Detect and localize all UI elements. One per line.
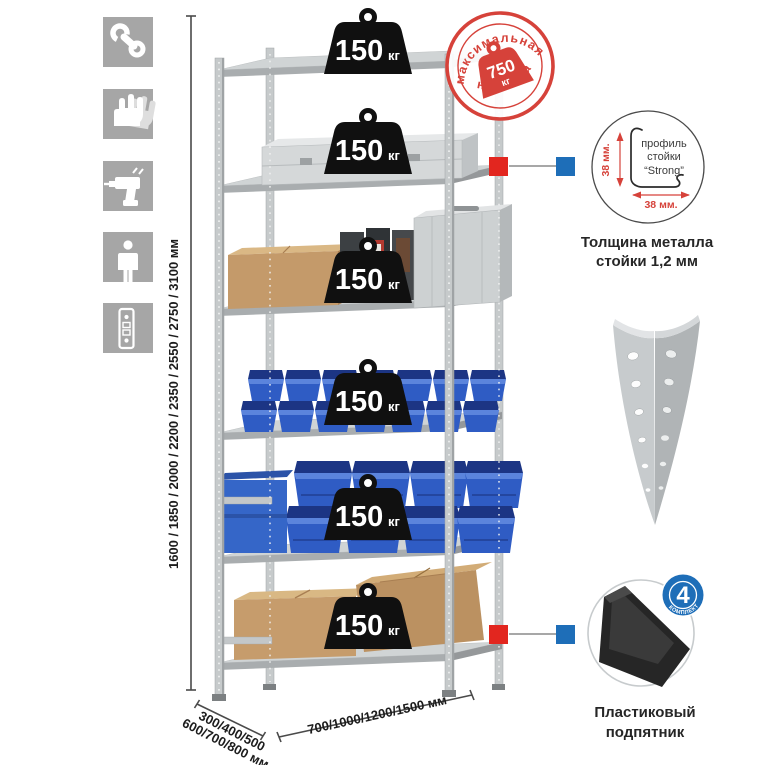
- load-unit: кг: [388, 623, 401, 638]
- profile-dim-horizontal: 38 мм.: [644, 199, 677, 211]
- large-bins-upper-row: [294, 461, 523, 508]
- foot-caption-2: подпятник: [606, 724, 685, 741]
- kit-count-badge: 4 В КОМПЛЕКТЕ: [661, 573, 705, 617]
- aluminium-case-large: [414, 204, 512, 308]
- height-dimension: 1600 / 1850 / 2000 / 2200 / 2350 / 2550 …: [166, 16, 196, 690]
- load-unit: кг: [388, 277, 401, 292]
- rack-foot: [263, 684, 276, 690]
- rack-post-front-left: [215, 58, 224, 696]
- side-beam-low: [216, 637, 272, 644]
- blue-container: [219, 470, 293, 553]
- load-value: 150: [335, 610, 383, 642]
- load-value: 150: [335, 35, 383, 67]
- rack-foot: [492, 684, 505, 690]
- kit-count-value: 4: [676, 582, 690, 609]
- side-beam-mid: [216, 497, 272, 504]
- profile-caption-1: Толщина металла: [581, 234, 714, 251]
- gloves-icon: [103, 89, 157, 139]
- rack-post-back-right: [495, 46, 503, 686]
- person-icon: [103, 232, 153, 282]
- profile-label-1: профиль: [641, 138, 687, 150]
- load-badge-2: 150 кг: [324, 111, 412, 175]
- profile-label-2: стойки: [647, 151, 681, 163]
- depth-dimension: 300/400/500 600/700/800 мм: [180, 700, 278, 765]
- rack-post-front-right: [445, 54, 454, 692]
- diagram-svg: 1600 / 1850 / 2000 / 2200 / 2350 / 2550 …: [0, 0, 765, 765]
- callout-marker-blue: [556, 157, 575, 176]
- load-value: 150: [335, 264, 383, 296]
- width-label: 700/1000/1200/1500 мм: [306, 692, 448, 737]
- profile-caption-2: стойки 1,2 мм: [596, 253, 698, 270]
- foot-caption-1: Пластиковый: [594, 704, 695, 721]
- load-badge-1: 150 кг: [324, 11, 412, 75]
- product-diagram: 1600 / 1850 / 2000 / 2200 / 2350 / 2550 …: [0, 0, 765, 765]
- feature-icon-list: [103, 17, 157, 353]
- load-unit: кг: [388, 514, 401, 529]
- profile-detail: 38 мм. 38 мм. профиль стойки “Strong” То…: [581, 111, 714, 270]
- width-dimension: 700/1000/1200/1500 мм: [277, 690, 474, 742]
- profile-dim-vertical: 38 мм.: [600, 143, 612, 176]
- load-value: 150: [335, 501, 383, 533]
- callout-profile: [489, 157, 575, 176]
- callout-marker-red: [489, 625, 508, 644]
- rack-foot: [212, 694, 226, 701]
- load-unit: кг: [388, 148, 401, 163]
- profile-label-3: “Strong”: [644, 165, 684, 177]
- callout-marker-blue: [556, 625, 575, 644]
- wrench-icon: [103, 17, 153, 67]
- load-value: 150: [335, 386, 383, 418]
- load-unit: кг: [388, 399, 401, 414]
- foot-detail: 4 В КОМПЛЕКТЕ Пластиковый подпятник: [588, 573, 705, 741]
- callout-foot: [489, 625, 575, 644]
- load-unit: кг: [388, 48, 401, 63]
- rack-post-icon: [103, 303, 153, 353]
- angle-profile-image: [613, 315, 700, 525]
- load-value: 150: [335, 135, 383, 167]
- height-dimension-label: 1600 / 1850 / 2000 / 2200 / 2350 / 2550 …: [166, 239, 181, 569]
- callout-marker-red: [489, 157, 508, 176]
- drill-icon: [103, 161, 153, 211]
